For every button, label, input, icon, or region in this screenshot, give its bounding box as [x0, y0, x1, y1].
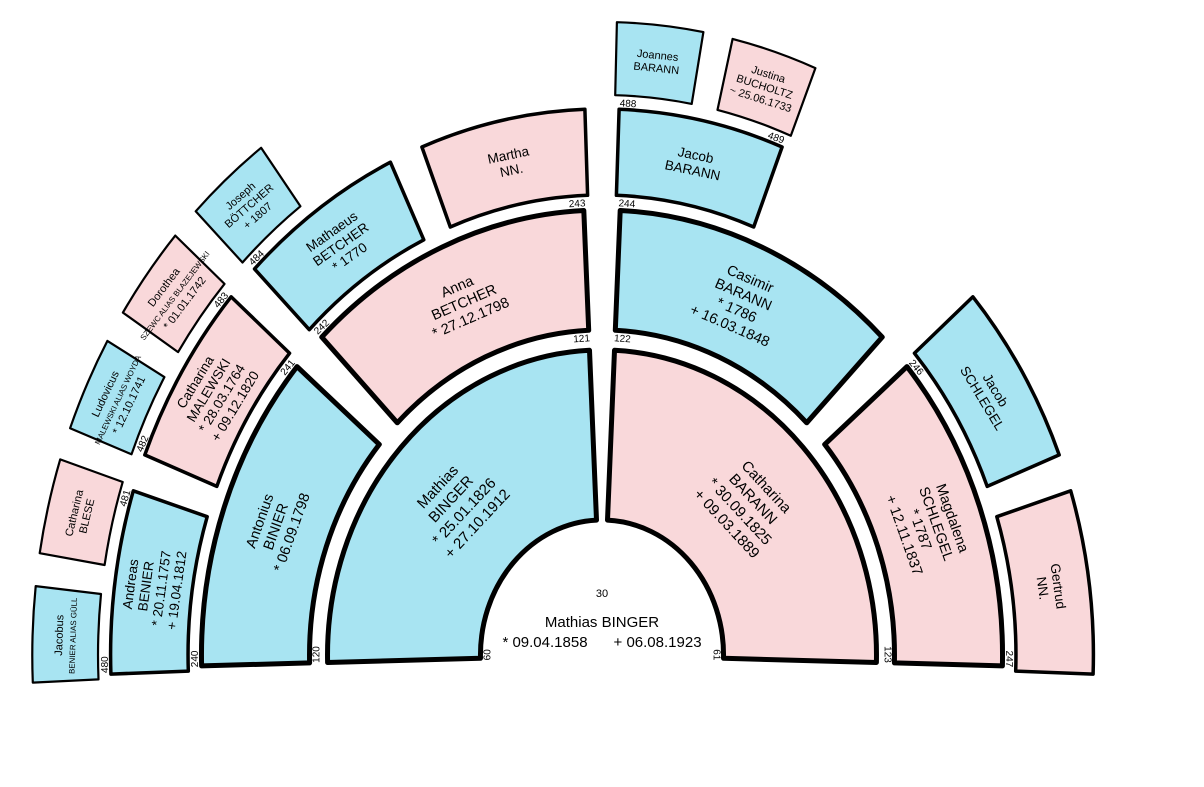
ahnentafel-number: 480	[100, 656, 111, 673]
ahnentafel-number: 243	[568, 198, 586, 210]
segment-247[interactable]: GertrudNN.247	[997, 491, 1094, 674]
segment-243[interactable]: MarthaNN.243	[422, 109, 588, 227]
ahnentafel-number: 120	[311, 646, 322, 663]
person-text-line: NN.	[1034, 576, 1052, 601]
ahnentafel-number: 122	[614, 333, 632, 345]
center-death-date: + 06.08.1923	[614, 634, 702, 651]
segment-text: JoannesBARANN	[633, 48, 681, 78]
ahnentafel-number: 247	[1003, 651, 1014, 668]
center-person-name: Mathias BINGER	[502, 614, 701, 631]
ahnentafel-number: 61	[711, 649, 722, 661]
segment-244[interactable]: JacobBARANN244	[616, 109, 782, 227]
ahnentafel-number: 60	[482, 649, 493, 661]
ahnentafel-number: 240	[190, 650, 201, 667]
center-person-dates: * 09.04.1858 + 06.08.1923	[502, 634, 701, 651]
ahnentafel-number: 244	[618, 198, 636, 210]
center-birth-date: * 09.04.1858	[502, 634, 587, 651]
person-text-line: Jacobus	[53, 614, 66, 656]
center-person[interactable]: 30 Mathias BINGER * 09.04.1858 + 06.08.1…	[502, 588, 701, 651]
segment-480[interactable]: JacobusBENIER ALIAS GÜLL480	[32, 586, 111, 683]
ahnentafel-number: 488	[619, 98, 637, 110]
center-ahnentafel-number: 30	[502, 588, 701, 600]
fan-chart: MathiasBINGER* 25.01.1826+ 27.10.191260C…	[0, 0, 1204, 787]
ahnentafel-number: 121	[573, 333, 591, 345]
segment-240[interactable]: AndreasBENIER* 20.11.1757+ 19.04.1812240	[111, 491, 208, 674]
ahnentafel-number: 123	[882, 646, 893, 663]
segment-488[interactable]: JoannesBARANN488	[615, 22, 703, 110]
fan-chart-canvas: MathiasBINGER* 25.01.1826+ 27.10.191260C…	[0, 0, 1204, 787]
